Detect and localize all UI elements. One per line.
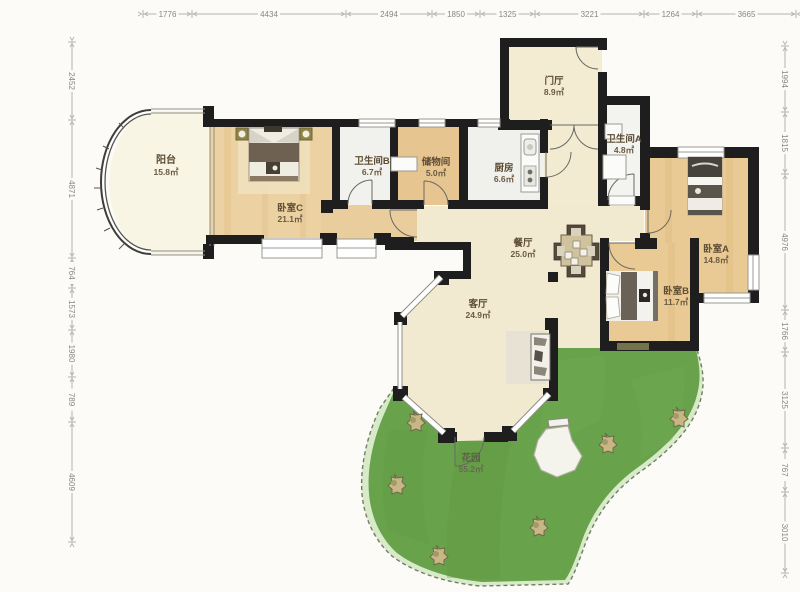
svg-text:24.9㎡: 24.9㎡ [465,310,491,320]
svg-text:3125: 3125 [780,391,789,409]
svg-text:卫生间A: 卫生间A [606,133,642,145]
svg-text:55.2㎡: 55.2㎡ [458,464,484,474]
svg-text:4434: 4434 [260,10,278,19]
svg-text:4871: 4871 [67,180,76,198]
svg-text:储物间: 储物间 [422,156,451,168]
svg-text:卧室B: 卧室B [663,285,689,297]
svg-text:4.8㎡: 4.8㎡ [614,145,635,155]
svg-text:3221: 3221 [581,10,599,19]
svg-text:厨房: 厨房 [494,162,513,174]
svg-text:客厅: 客厅 [467,298,488,310]
svg-text:5.0㎡: 5.0㎡ [426,168,447,178]
svg-text:11.7㎡: 11.7㎡ [664,297,689,307]
svg-text:2452: 2452 [67,72,76,90]
svg-text:1994: 1994 [780,70,789,88]
svg-text:餐厅: 餐厅 [512,237,533,249]
svg-text:1573: 1573 [67,300,76,318]
svg-text:6.7㎡: 6.7㎡ [362,167,383,177]
svg-text:6.6㎡: 6.6㎡ [494,174,515,184]
svg-text:764: 764 [67,266,76,280]
svg-text:1850: 1850 [447,10,465,19]
svg-text:卧室C: 卧室C [277,202,303,214]
svg-text:767: 767 [780,463,789,477]
svg-text:1264: 1264 [662,10,680,19]
svg-text:789: 789 [67,393,76,407]
svg-text:卧室A: 卧室A [703,243,729,255]
svg-text:8.9㎡: 8.9㎡ [544,87,565,97]
svg-text:1980: 1980 [67,345,76,363]
svg-text:1776: 1776 [159,10,177,19]
svg-text:25.0㎡: 25.0㎡ [510,249,536,259]
svg-text:花园: 花园 [461,452,480,464]
svg-text:阳台: 阳台 [156,153,176,166]
svg-text:1325: 1325 [499,10,517,19]
svg-text:2494: 2494 [380,10,398,19]
svg-text:21.1㎡: 21.1㎡ [277,214,303,224]
svg-text:4976: 4976 [780,233,789,251]
svg-text:4609: 4609 [67,473,76,491]
svg-text:门厅: 门厅 [544,75,564,87]
svg-text:卫生间B: 卫生间B [354,155,390,167]
svg-text:3665: 3665 [738,10,756,19]
svg-text:14.8㎡: 14.8㎡ [703,255,729,265]
svg-text:15.8㎡: 15.8㎡ [153,167,179,177]
svg-text:1766: 1766 [780,322,789,340]
svg-text:3010: 3010 [780,524,789,542]
svg-text:1815: 1815 [780,134,789,152]
